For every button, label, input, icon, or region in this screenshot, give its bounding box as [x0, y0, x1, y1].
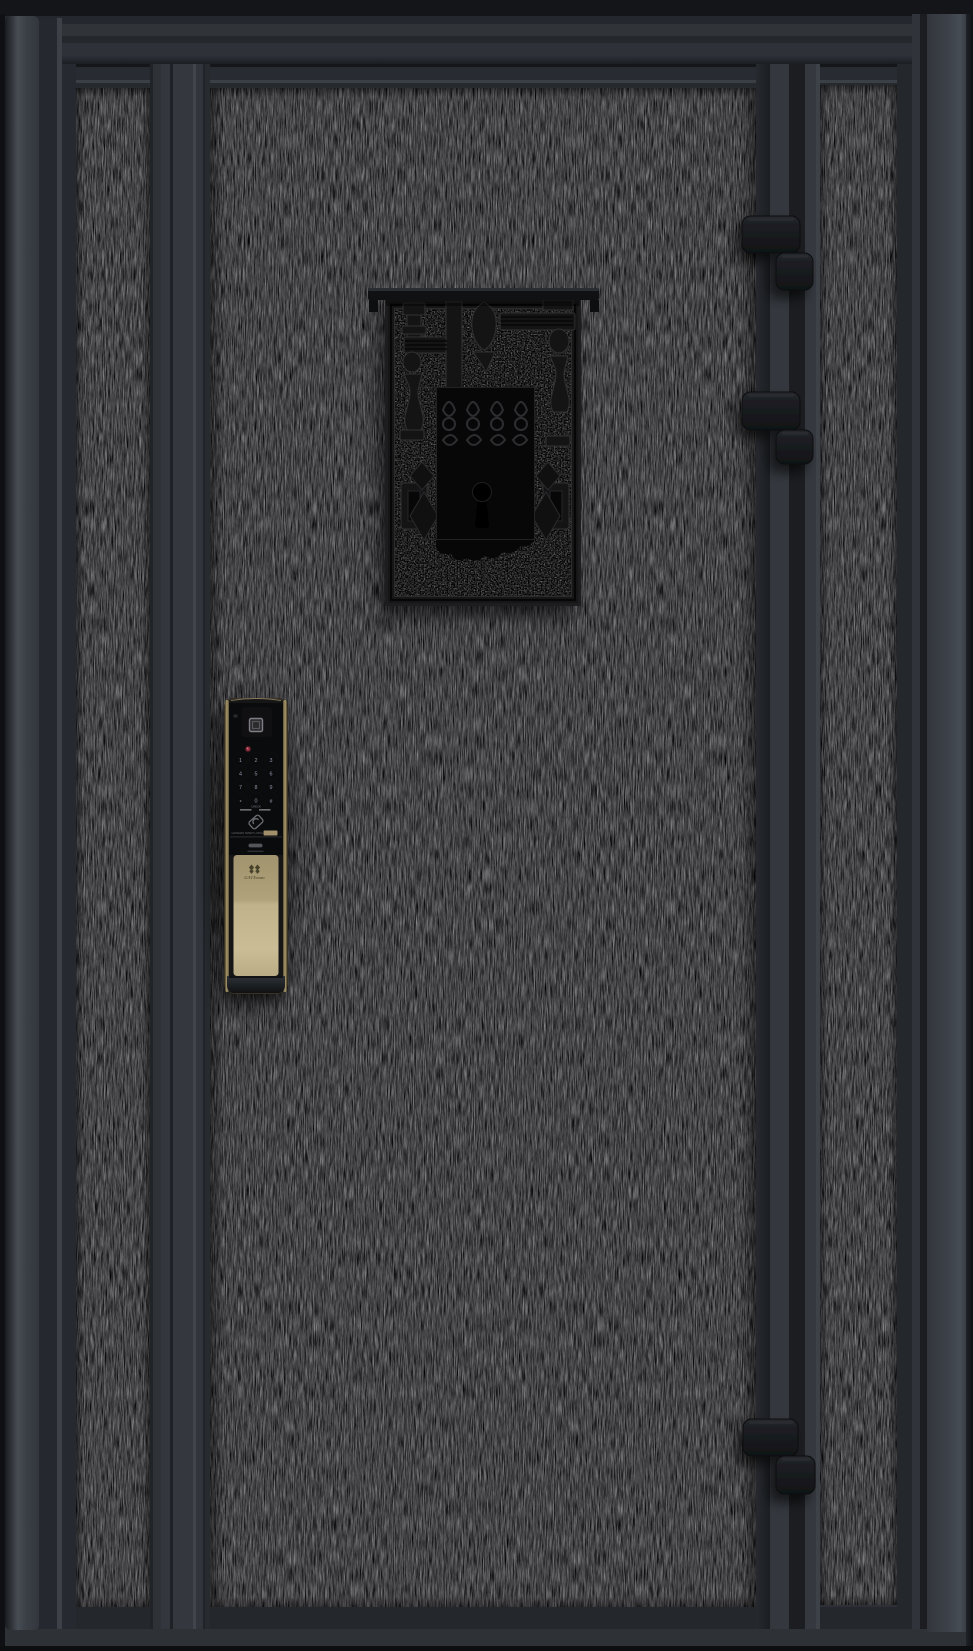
svg-text:GATEman: GATEman: [244, 875, 265, 880]
svg-text:#: #: [270, 799, 273, 805]
svg-text:5: 5: [255, 772, 258, 778]
svg-text:6: 6: [270, 772, 273, 778]
svg-text:1: 1: [239, 758, 242, 764]
svg-text:2: 2: [255, 758, 258, 764]
svg-text:4: 4: [239, 772, 242, 778]
svg-text:7: 7: [239, 785, 242, 791]
svg-text:GATEMAN SMART LIVING: GATEMAN SMART LIVING: [232, 831, 264, 835]
svg-text:8: 8: [255, 785, 258, 791]
svg-text:9: 9: [270, 785, 273, 791]
svg-text:3: 3: [270, 758, 273, 764]
svg-text:CHECK: CHECK: [251, 805, 261, 809]
